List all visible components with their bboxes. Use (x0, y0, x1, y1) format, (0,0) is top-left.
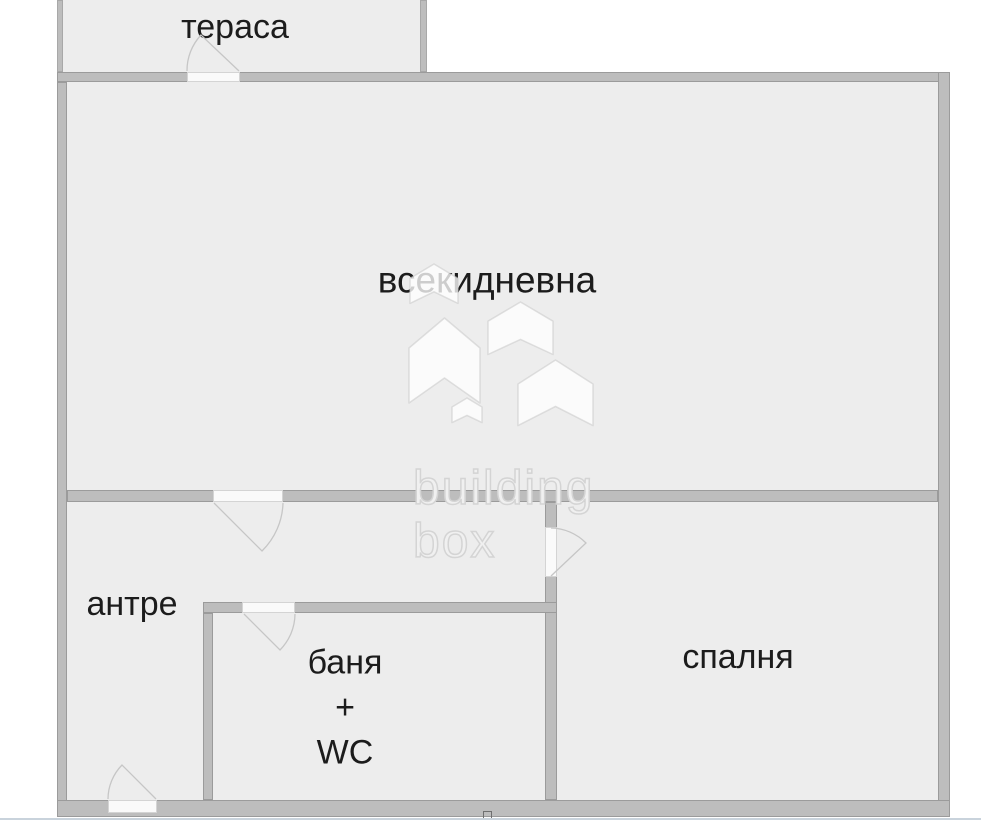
bathroom-door-opening (242, 602, 295, 613)
wall-living-room-bottom (67, 490, 938, 502)
wall-exterior-bottom (57, 800, 950, 817)
wall-bathroom-left (203, 613, 213, 800)
hallway-door-opening (213, 490, 283, 502)
floor-plan: тераса всекидневна антре баня + WC спалн… (0, 0, 981, 820)
bedroom-label: спалня (682, 640, 793, 674)
bathroom-label: баня + WC (308, 641, 383, 776)
bathroom-label-line3: WC (308, 731, 383, 776)
bathroom-label-line2: + (308, 686, 383, 731)
hallway-label: антре (86, 587, 177, 621)
entrance-door-opening (108, 800, 157, 813)
terrace-door-opening (187, 72, 240, 82)
bedroom-door-opening (545, 527, 557, 577)
wall-terrace-left (57, 0, 63, 72)
wall-exterior-left (57, 82, 67, 817)
living-room-label: всекидневна (378, 262, 596, 299)
wall-terrace-right (420, 0, 427, 72)
wall-exterior-right (938, 72, 950, 817)
terrace-label: тераса (181, 10, 289, 44)
apartment-interior-area (67, 82, 938, 800)
bathroom-label-line1: баня (308, 641, 383, 686)
